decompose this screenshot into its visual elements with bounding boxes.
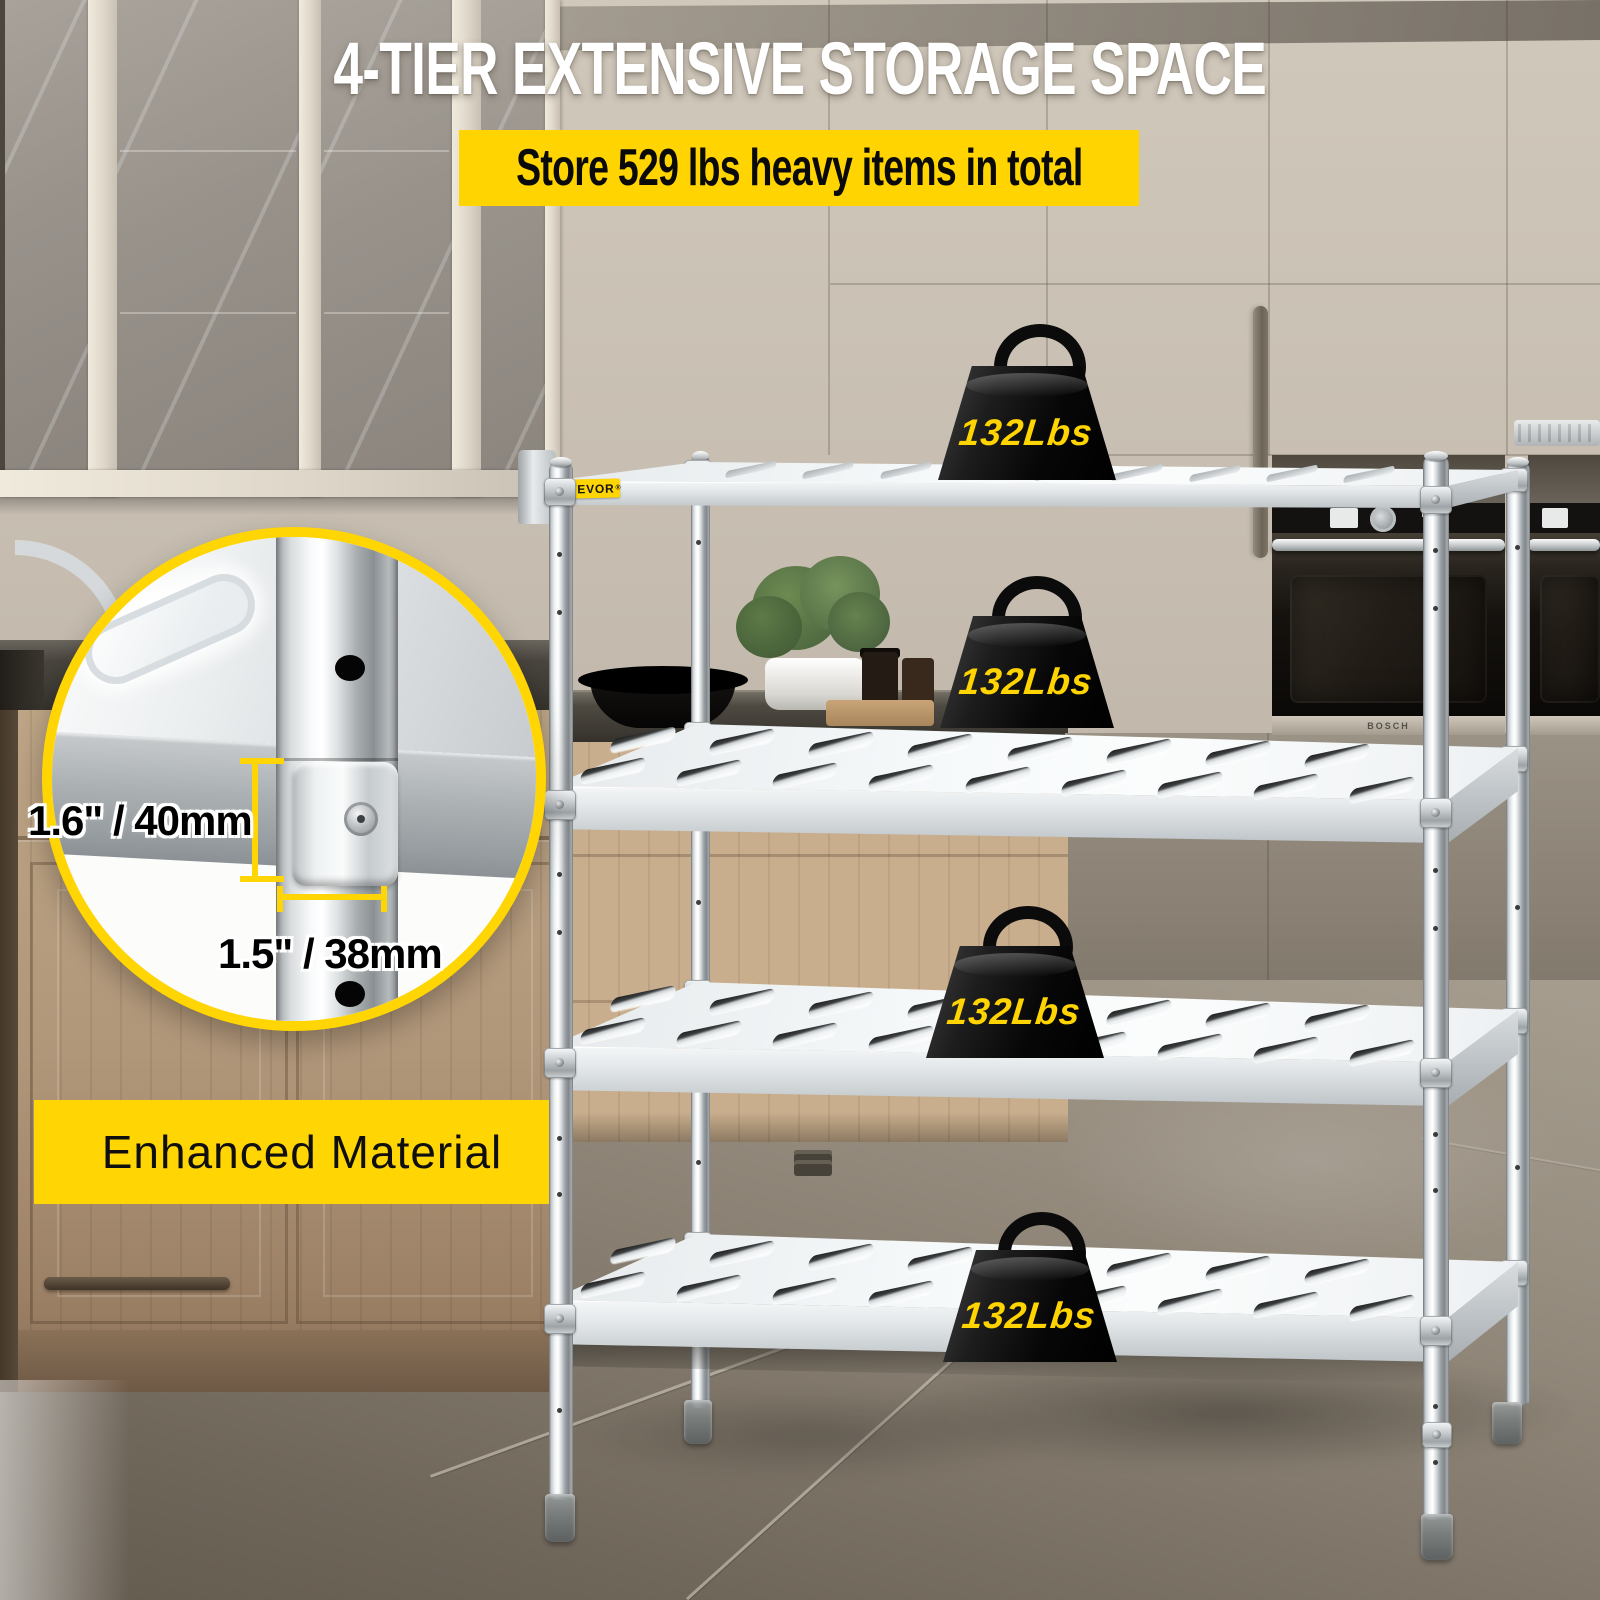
- dimension-line-horizontal: [280, 894, 384, 900]
- floor-light-reflection: [0, 1380, 130, 1600]
- pole-adjustment-hole: [696, 1160, 701, 1165]
- subtitle-banner-label: Store 529 lbs heavy items in total: [516, 138, 1082, 198]
- material-banner-label: Enhanced Material: [102, 1125, 503, 1179]
- pole-adjustment-hole: [557, 872, 562, 877]
- dimension-tick: [240, 758, 284, 764]
- oven-knob: [1370, 506, 1396, 532]
- oven-brand-strip: BOSCH: [1272, 716, 1505, 735]
- pole-hole: [335, 981, 365, 1007]
- pole-clamp: [544, 790, 576, 820]
- pole-collar: [1422, 1422, 1452, 1448]
- pole-adjustment-hole: [696, 540, 701, 545]
- leveling-foot: [545, 1494, 575, 1542]
- pole-adjustment-hole: [1433, 1460, 1438, 1465]
- leveling-foot: [684, 1400, 712, 1444]
- dimension-tick: [381, 886, 387, 912]
- pole-clamp: [1420, 486, 1452, 514]
- pole-adjustment-hole: [557, 930, 562, 935]
- pole-adjustment-hole: [557, 610, 562, 615]
- pole-adjustment-hole: [1433, 548, 1438, 553]
- page-title: 4-TIER EXTENSIVE STORAGE SPACE: [0, 26, 1600, 111]
- pole-adjustment-hole: [557, 1192, 562, 1197]
- pole-adjustment-hole: [1433, 1404, 1438, 1409]
- dimension-line-vertical: [252, 762, 258, 880]
- product-hero-image: BOSCH Enhanced Material: [0, 0, 1600, 1600]
- cabinet-door-handle: [1253, 306, 1268, 558]
- oven-window: [1290, 575, 1487, 703]
- dimension-tick: [240, 876, 284, 882]
- cabinet-handle: [44, 1277, 230, 1290]
- wall-seam: [830, 283, 1600, 285]
- shelf-pole-front-right: [1423, 454, 1449, 1520]
- pole-adjustment-hole: [1515, 1165, 1520, 1170]
- pole-clamp: [544, 478, 576, 506]
- inset-rivet: [344, 802, 378, 836]
- inset-clamp: [292, 762, 398, 886]
- leveling-foot: [1492, 1402, 1522, 1444]
- pole-adjustment-hole: [557, 1408, 562, 1413]
- cutting-board: [826, 700, 934, 726]
- pole-adjustment-hole: [1515, 905, 1520, 910]
- dimension-tick: [277, 886, 283, 912]
- oven-brand-label: BOSCH: [1367, 721, 1410, 731]
- oven-vent: [1514, 420, 1600, 446]
- pole-adjustment-hole: [1433, 868, 1438, 873]
- pole-clamp: [544, 1304, 576, 1334]
- pole-adjustment-hole: [1433, 1188, 1438, 1193]
- floor-vent-grille: [794, 1150, 832, 1176]
- subtitle-banner: Store 529 lbs heavy items in total: [459, 130, 1139, 206]
- registered-mark: ®: [615, 484, 621, 491]
- pole-diameter-label: 1.5" / 38mm: [218, 930, 442, 978]
- pole-clamp: [544, 1048, 576, 1078]
- pole-clamp: [1420, 798, 1452, 828]
- shelf-pole-front-left: [549, 460, 573, 1500]
- pole-adjustment-hole: [1433, 926, 1438, 931]
- material-banner: Enhanced Material: [34, 1100, 570, 1204]
- pole-clamp: [1420, 1316, 1452, 1346]
- pole-adjustment-hole: [557, 552, 562, 557]
- wall-oven-partial: [1528, 455, 1600, 735]
- leveling-foot: [1421, 1514, 1453, 1560]
- wok-rim: [578, 666, 748, 694]
- oven-display: [1330, 508, 1358, 528]
- pole-adjustment-hole: [1433, 1132, 1438, 1137]
- pole-adjustment-hole: [1433, 606, 1438, 611]
- pole-adjustment-hole: [696, 900, 701, 905]
- brand-badge: VEVOR®: [570, 478, 620, 498]
- oven-handle: [1272, 539, 1505, 551]
- cabinet-bottom-rail: [0, 470, 560, 497]
- pole-adjustment-hole: [1515, 545, 1520, 550]
- pole-hole: [335, 655, 365, 681]
- shelf-thickness-label: 1.6" / 40mm: [28, 797, 252, 845]
- pole-clamp: [1420, 1058, 1452, 1088]
- pole-adjustment-hole: [557, 1136, 562, 1141]
